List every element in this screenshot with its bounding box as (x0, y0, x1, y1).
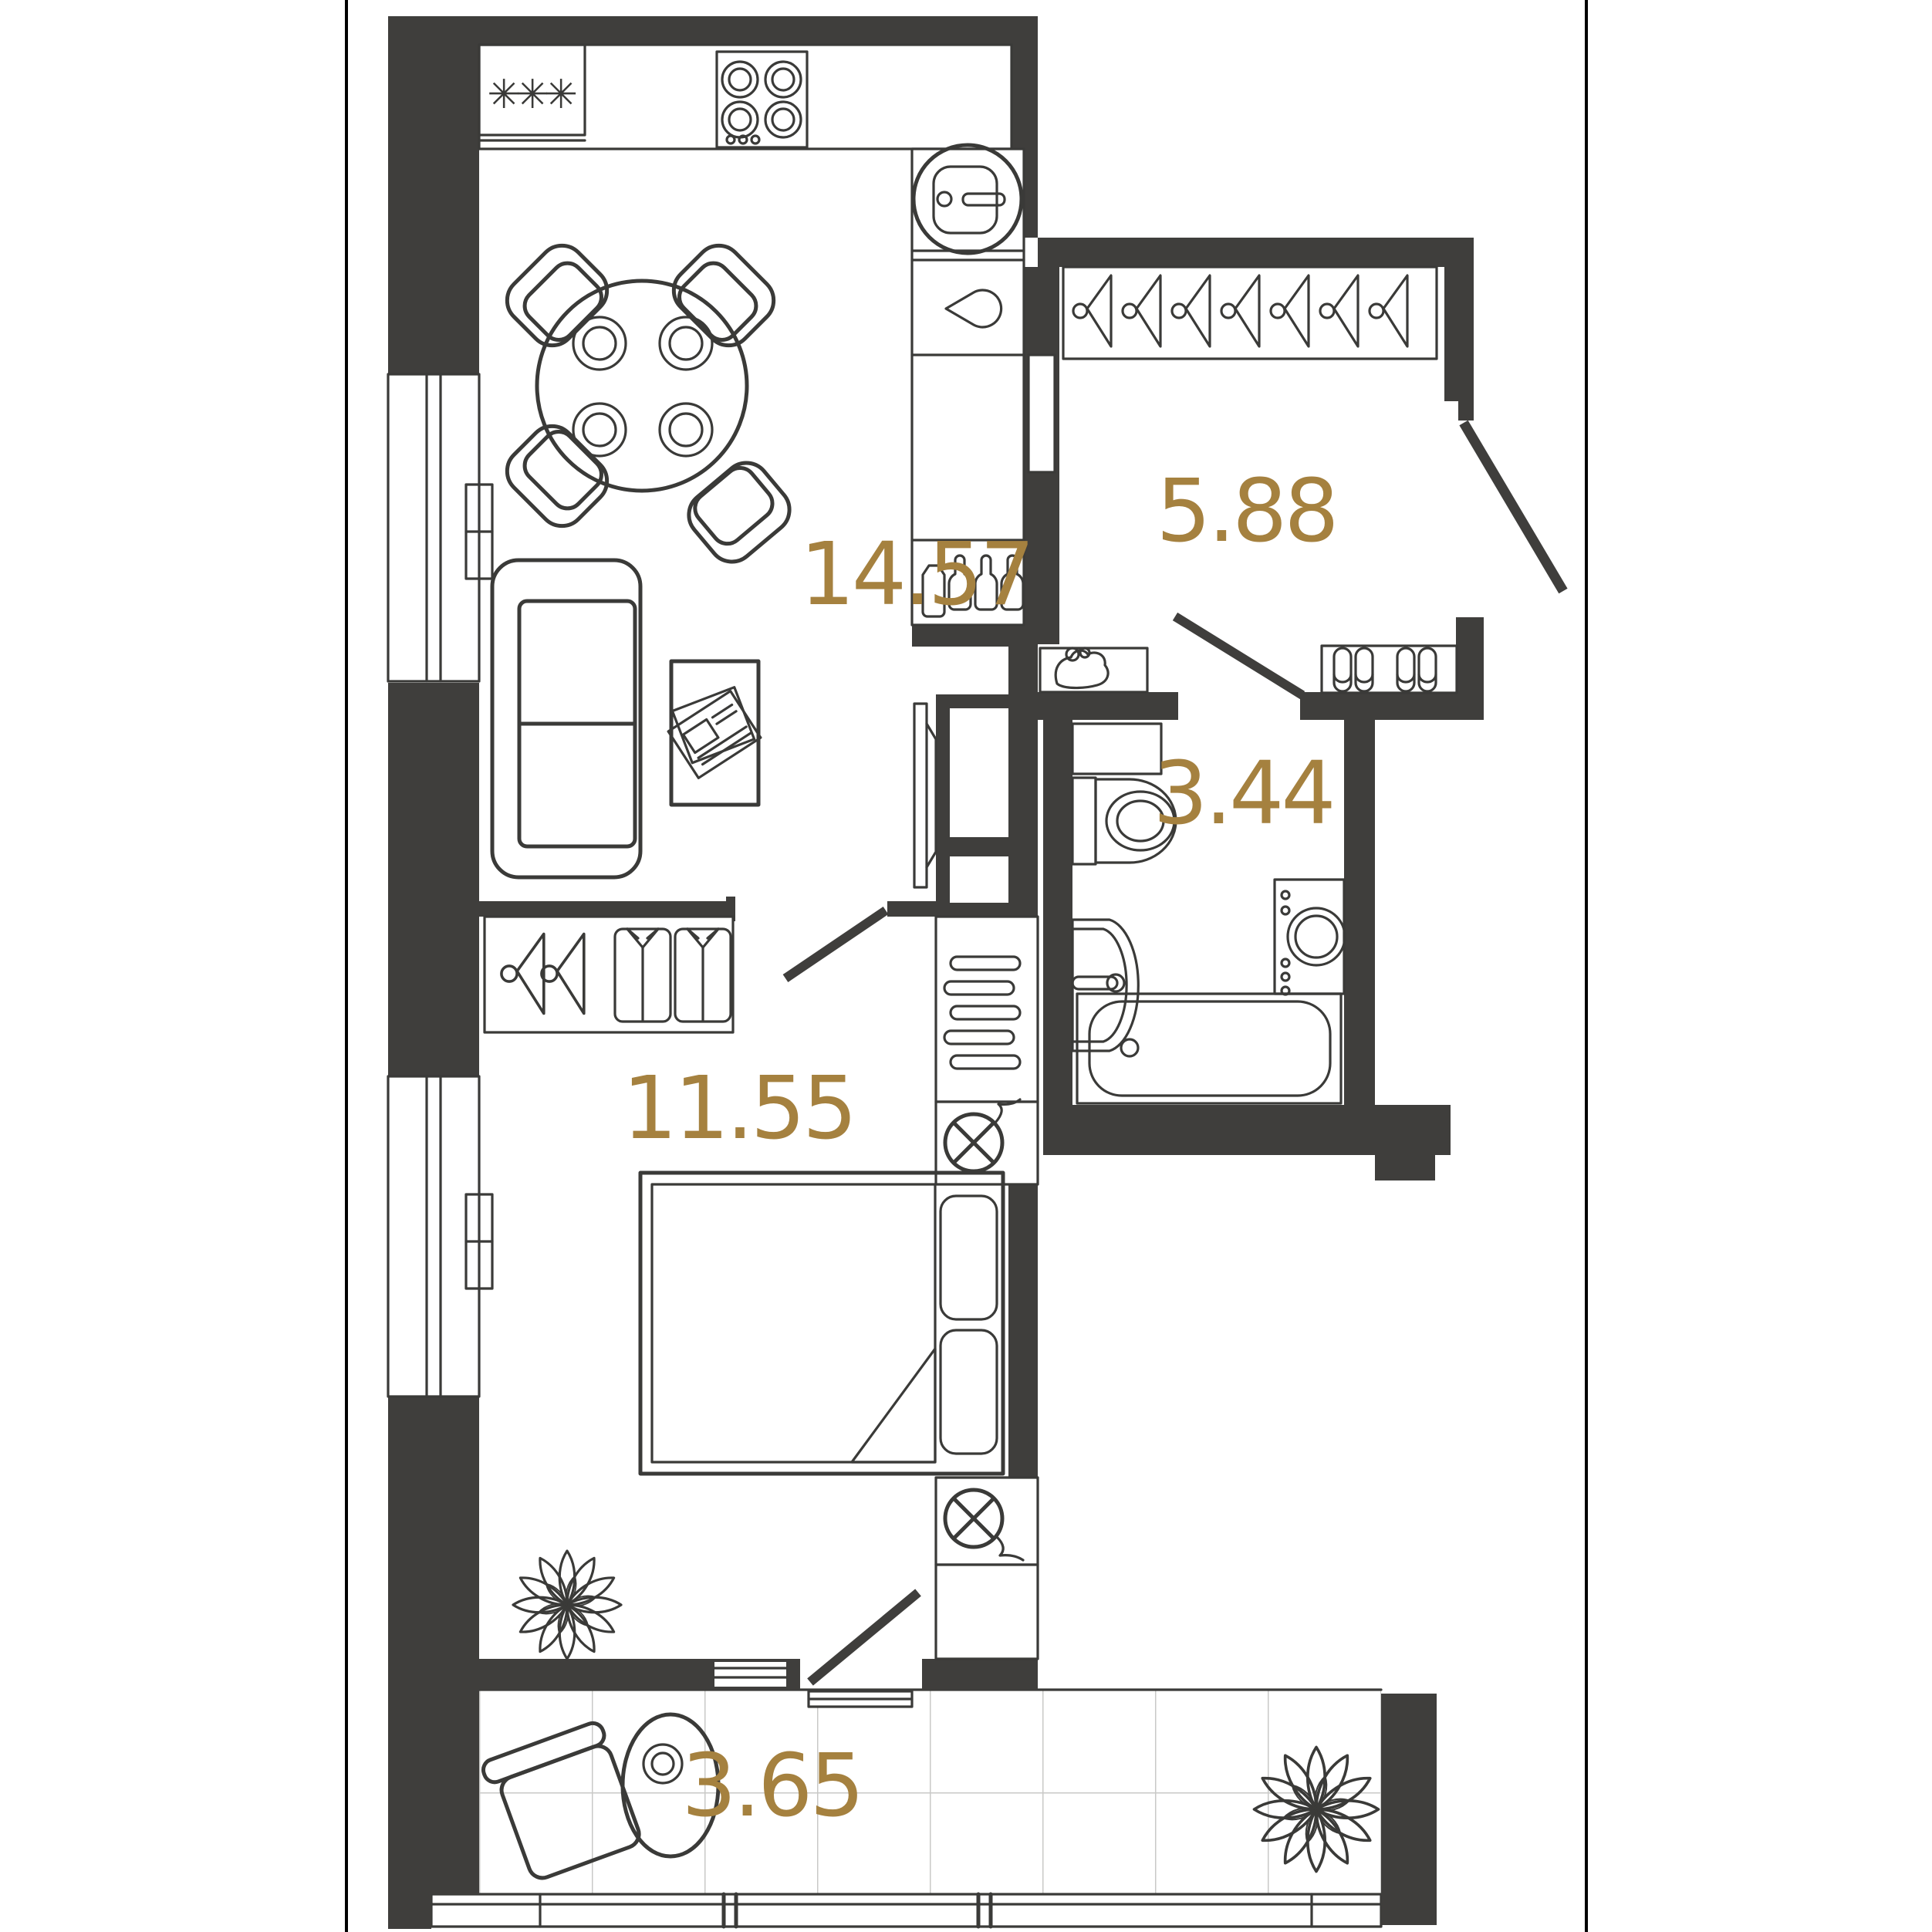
chair-icon (498, 236, 616, 355)
freezer-asterisks-icon: ✳✳✳ (487, 72, 578, 118)
plates (573, 317, 712, 456)
wall-bath-right (1344, 692, 1375, 1155)
wall-bath-top-right (1300, 692, 1484, 720)
wall-left-top (388, 16, 479, 374)
coat-rail (1063, 267, 1437, 359)
entry-door-swing (1464, 423, 1563, 591)
wall-left-middle (388, 683, 479, 1076)
wall-balcony-right (922, 1659, 1038, 1690)
wardrobe (485, 917, 733, 1032)
wall-under-counter (912, 625, 1038, 647)
page-border-left (345, 0, 348, 1932)
shaft-box-empty (936, 1565, 1038, 1659)
chair-icon (680, 454, 799, 571)
wall-bedroom-divider (479, 901, 735, 917)
purse-shelf-icon (1040, 648, 1147, 692)
wall-bath-top-left (1038, 692, 1178, 720)
wall-balcony-end (1381, 1694, 1437, 1925)
wall-balcony-corner (388, 1894, 431, 1929)
wall-niche (1028, 355, 1055, 472)
coffee-table-newspaper-icon (660, 661, 765, 805)
wall-left-bottom (388, 1397, 479, 1894)
shoe-rack-slippers-icon (1322, 646, 1457, 693)
wardrobe-box (485, 917, 733, 1032)
bathroom-door-swing (1175, 616, 1302, 695)
pillow-icon (941, 1330, 997, 1454)
area-label-kitchen-living: 14.57 (800, 525, 1032, 625)
tv-icon (914, 704, 936, 887)
area-label-bedroom: 11.55 (623, 1059, 855, 1159)
bedroom-area (485, 917, 1038, 1659)
balcony (431, 1690, 1381, 1927)
balcony-door-swing (810, 1593, 918, 1682)
double-bed-icon (640, 1173, 1003, 1474)
floor-plan-page: ✳✳✳ (0, 0, 1932, 1932)
chair-icon (498, 417, 616, 535)
sofa-icon (492, 560, 640, 877)
area-label-balcony: 3.65 (681, 1736, 861, 1836)
balcony-tile-floor (479, 1690, 1381, 1894)
entry-door-jamb (1458, 401, 1474, 421)
niche-column-shelf-top (950, 708, 1008, 837)
washing-machine-icon (1275, 880, 1345, 995)
dining-set (498, 236, 799, 571)
svg-text:✳: ✳ (544, 72, 578, 118)
plant-icon (513, 1551, 621, 1659)
washbasin-icon (1072, 920, 1138, 1051)
floor-plan-drawing: ✳✳✳ (0, 0, 1932, 1932)
wall-top (479, 16, 1038, 45)
bedroom-door-swing (785, 910, 886, 978)
pillow-icon (941, 1196, 997, 1319)
bath-duct-box (1072, 724, 1161, 774)
balcony-window-gap (714, 1662, 786, 1687)
niche-column-shelf-bottom (950, 856, 1008, 903)
chair-icon (664, 236, 783, 355)
balcony-glazing (431, 1894, 1381, 1927)
wall-hallway-top (1038, 238, 1474, 267)
light-box-bottom (936, 1478, 1038, 1565)
wall-bedroom-door-hinge (887, 901, 936, 917)
wall-entry-right-upper (1444, 238, 1474, 401)
area-label-bathroom: 3.44 (1153, 744, 1332, 844)
wall-bath-left (1043, 720, 1072, 1155)
wall-bath-corner-step (1375, 1105, 1435, 1180)
area-label-hallway: 5.88 (1156, 461, 1336, 562)
dining-table-icon (537, 281, 747, 491)
blanket-fold (852, 1349, 935, 1462)
page-border-right (1585, 0, 1588, 1932)
